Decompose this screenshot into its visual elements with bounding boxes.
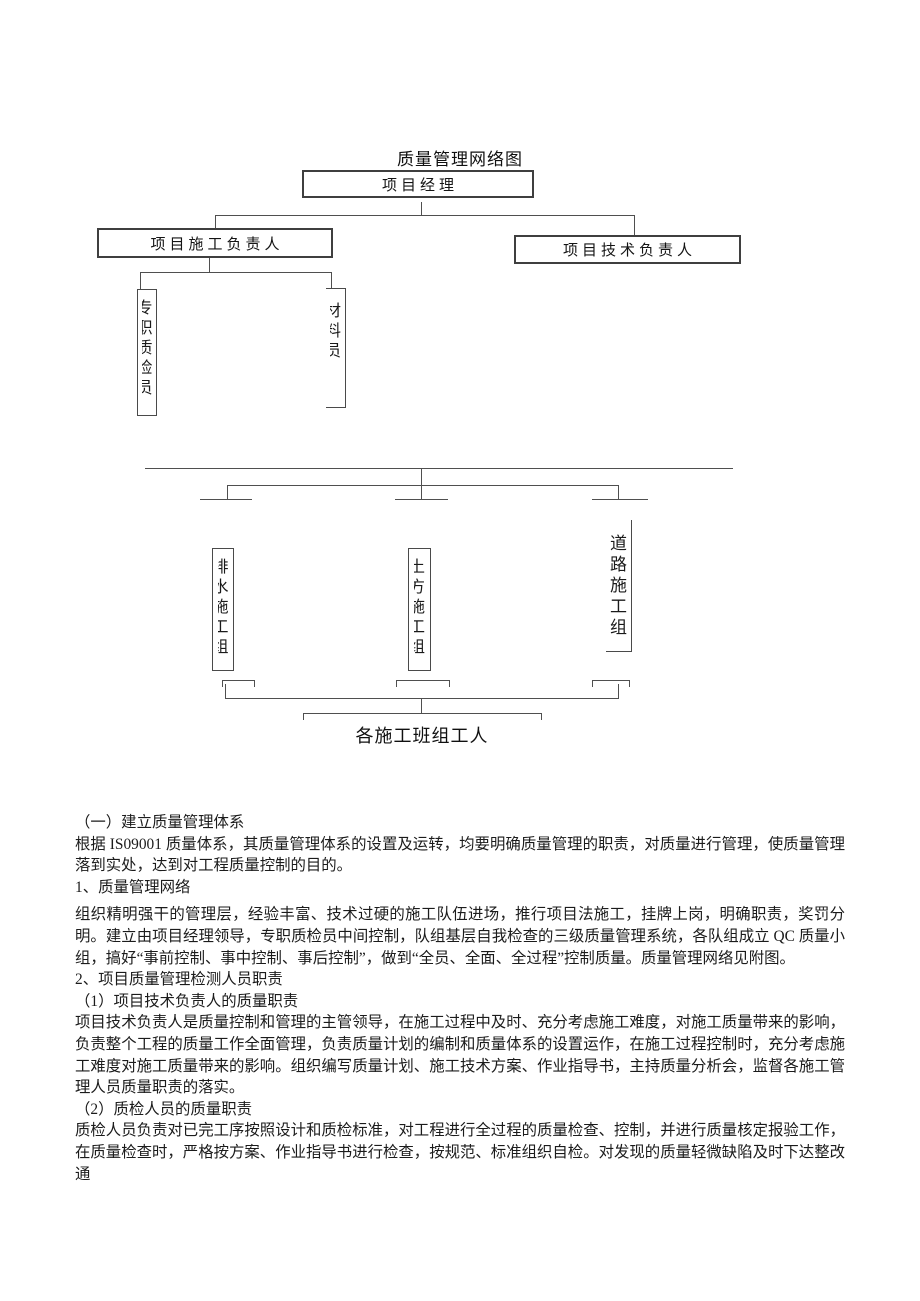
- connector-line: [215, 215, 216, 229]
- connector-line: [209, 258, 210, 273]
- connector-line: [227, 485, 619, 486]
- node-project-manager-label: 项目经理: [378, 174, 458, 195]
- node-drainage-group-label: 排水施工组: [213, 558, 233, 658]
- connector-line: [421, 485, 422, 500]
- node-qc-inspector-label: 专职质检员: [138, 299, 156, 399]
- section-paragraph: 项目技术负责人是质量控制和管理的主管领导，在施工过程中及时、充分考虑施工难度，对…: [75, 1012, 845, 1098]
- section-paragraph: 根据 IS09001 质量体系，其质量管理体系的设置及运转，均要明确质量管理的职…: [75, 834, 845, 877]
- connector-collector: [225, 684, 619, 699]
- node-drainage-group: 排水施工组: [212, 548, 234, 671]
- connector-line: [140, 272, 332, 273]
- node-workers: 各施工班组工人: [328, 722, 516, 748]
- node-material-clerk-label: 材料员: [326, 302, 345, 362]
- section-heading: （一）建立质量管理体系: [75, 812, 845, 834]
- connector-line: [331, 272, 332, 289]
- chart-title: 质量管理网络图: [340, 145, 580, 170]
- node-earthwork-group: 土方施工组: [408, 548, 431, 671]
- connector-line: [140, 272, 141, 290]
- node-construction-lead: 项目施工负责人: [97, 228, 333, 258]
- connector-cap: [395, 499, 448, 500]
- connector-line: [421, 202, 422, 216]
- connector-line: [145, 468, 733, 469]
- section-heading: 2、项目质量管理检测人员职责: [75, 969, 845, 991]
- document-page: 质量管理网络图 项目经理 项目施工负责人 项目技术负责人 专职质检员 材料员: [0, 0, 920, 1301]
- node-project-manager: 项目经理: [302, 170, 534, 198]
- connector-line: [215, 215, 635, 216]
- org-chart: 质量管理网络图 项目经理 项目施工负责人 项目技术负责人 专职质检员 材料员: [0, 0, 920, 780]
- connector-line: [421, 698, 422, 714]
- section-heading: 1、质量管理网络: [75, 877, 845, 899]
- node-road-group-label: 道路施工组: [606, 533, 631, 638]
- section-paragraph: 质检人员负责对已完工序按照设计和质检标准，对工程进行全过程的质量检查、控制，并进…: [75, 1120, 845, 1185]
- node-qc-inspector: 专职质检员: [137, 289, 157, 416]
- connector-line: [227, 485, 228, 500]
- node-construction-lead-label: 项目施工负责人: [146, 233, 283, 254]
- body-text: （一）建立质量管理体系 根据 IS09001 质量体系，其质量管理体系的设置及运…: [75, 812, 845, 1185]
- connector-line: [618, 485, 619, 500]
- connector-cap: [200, 499, 252, 500]
- section-heading: （1）项目技术负责人的质量职责: [75, 991, 845, 1013]
- connector-cap: [592, 499, 648, 500]
- node-technical-lead-label: 项目技术负责人: [559, 239, 696, 260]
- connector-line: [421, 468, 422, 486]
- connector-line: [634, 215, 635, 236]
- section-paragraph: 组织精明强干的管理层，经验丰富、技术过硬的施工队伍进场，推行项目法施工，挂牌上岗…: [75, 904, 845, 969]
- node-material-clerk: 材料员: [326, 288, 346, 408]
- section-heading: （2）质检人员的质量职责: [75, 1099, 845, 1121]
- node-road-group: 道路施工组: [606, 520, 632, 652]
- connector-bracket: [303, 713, 542, 720]
- node-technical-lead: 项目技术负责人: [514, 235, 741, 264]
- node-earthwork-group-label: 土方施工组: [409, 558, 430, 658]
